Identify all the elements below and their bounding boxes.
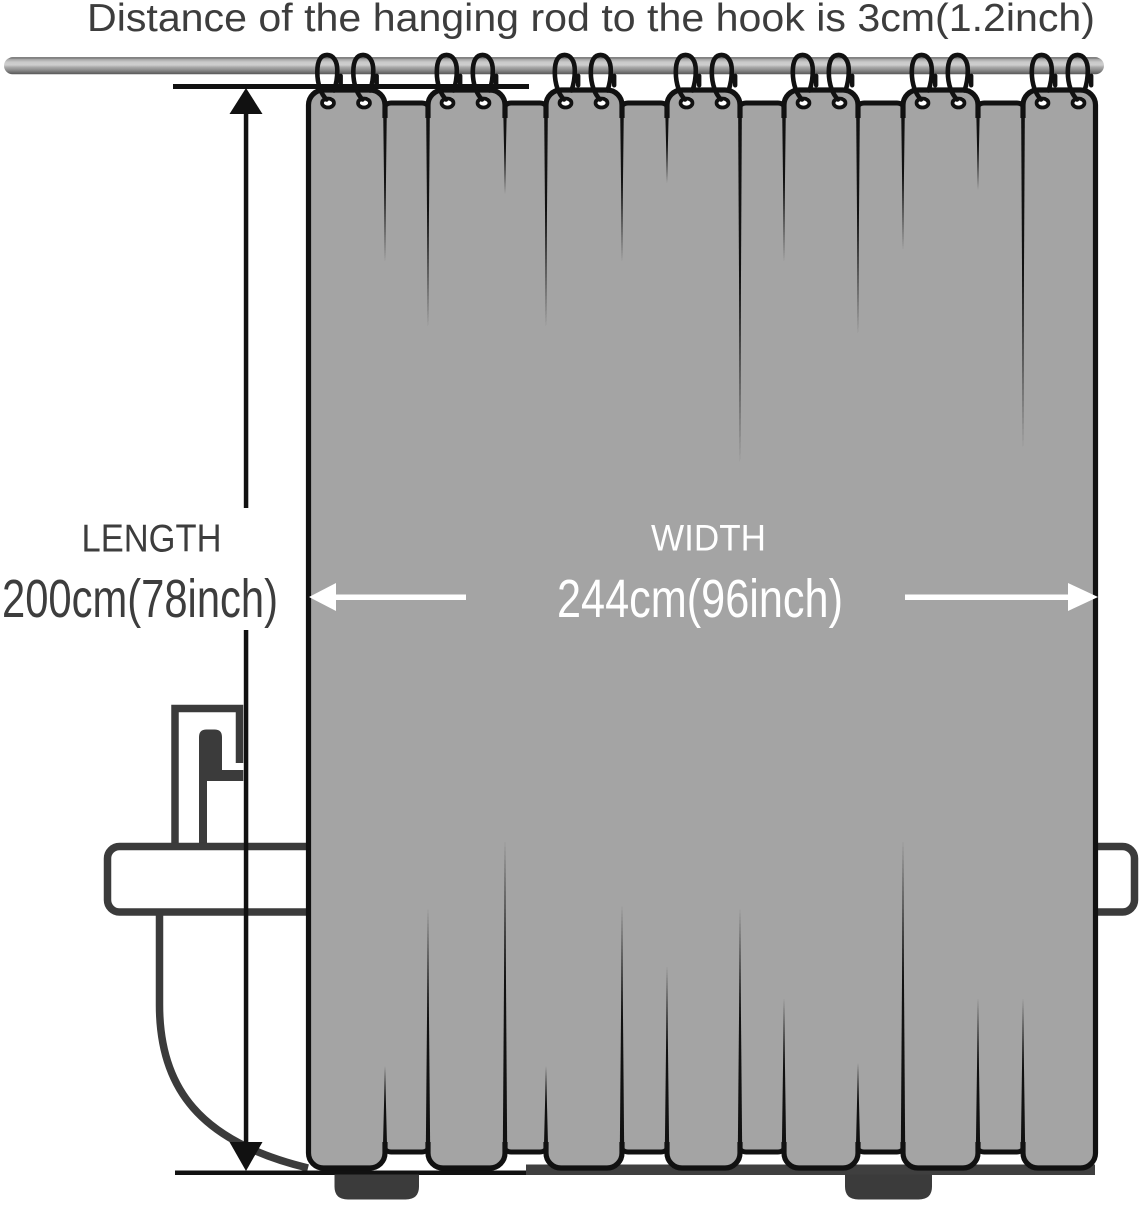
svg-text:WIDTH: WIDTH: [651, 518, 766, 559]
svg-text:Distance of the hanging rod to: Distance of the hanging rod to the hook …: [87, 0, 1095, 40]
svg-text:200cm(78inch): 200cm(78inch): [2, 570, 278, 629]
svg-text:LENGTH: LENGTH: [82, 518, 222, 561]
svg-text:244cm(96inch): 244cm(96inch): [557, 570, 843, 629]
